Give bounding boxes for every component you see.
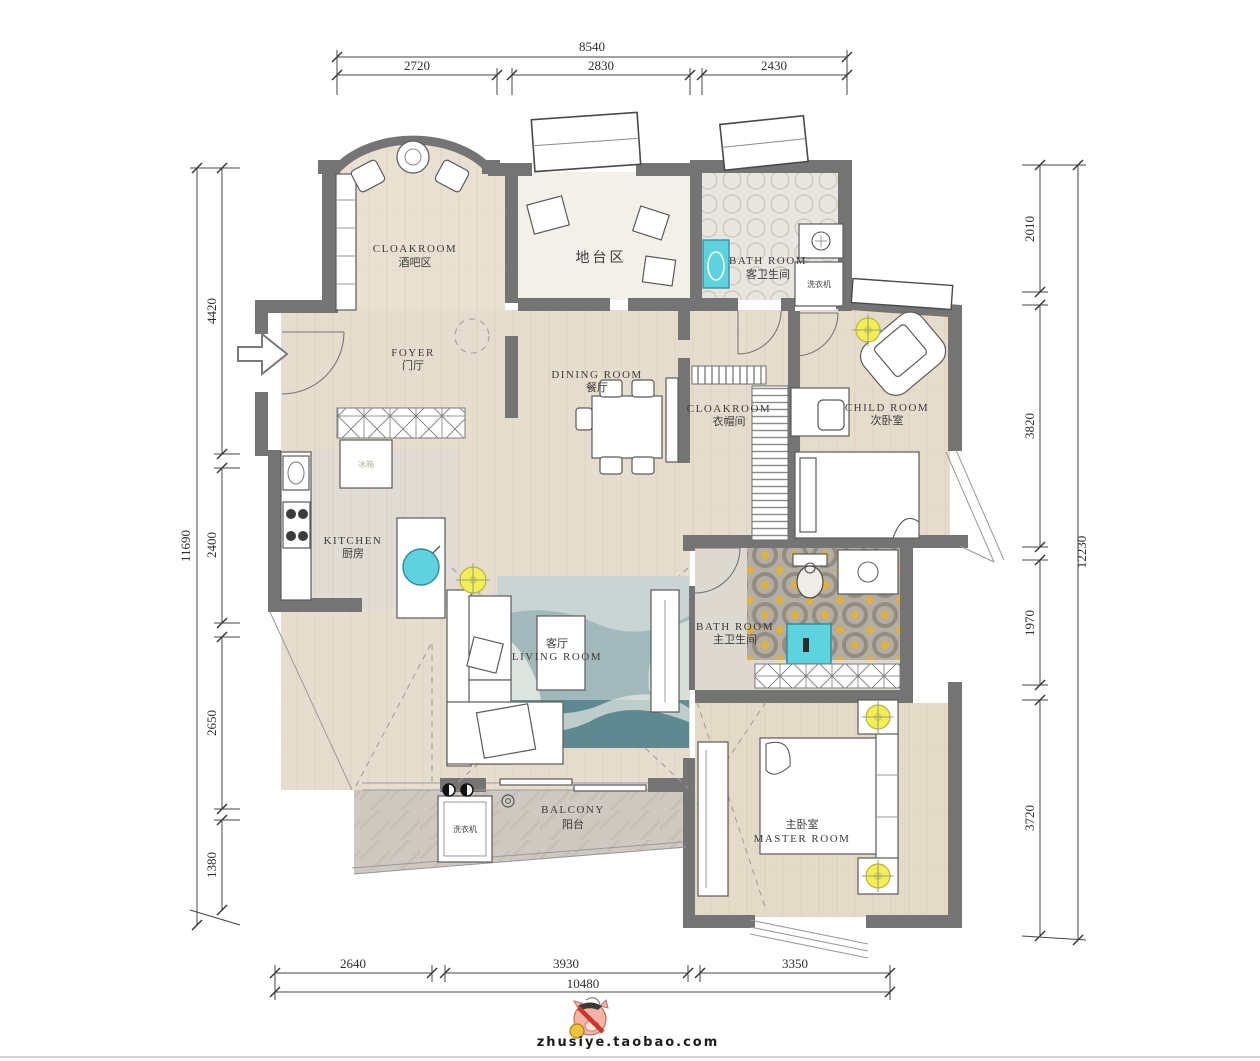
- child-chair: [818, 400, 844, 430]
- dim-bottom-seg3: 3350: [782, 956, 808, 971]
- room-label-master-bath-en: BATH ROOM: [696, 621, 774, 633]
- watermark: zhusiye.taobao.com: [0, 998, 1260, 1057]
- dim-left-seg4: 1380: [204, 852, 219, 878]
- dim-right-seg3: 1970: [1022, 610, 1037, 636]
- dim-left-seg1: 4420: [204, 298, 219, 324]
- room-label-cloakroom-zh: 衣帽间: [713, 414, 746, 428]
- room-label-guest-bath-zh: 客卫生间: [746, 267, 790, 281]
- stove: [283, 502, 310, 548]
- dim-right-seg2: 3820: [1022, 413, 1037, 439]
- pig-logo-icon: [570, 998, 608, 1038]
- dim-right-seg4: 3720: [1022, 805, 1037, 831]
- headboard: [876, 732, 898, 860]
- room-label-balcony-zh: 阳台: [562, 817, 584, 831]
- room-label-kitchen-en: KITCHEN: [324, 535, 383, 547]
- dim-left-seg2: 2400: [204, 532, 219, 558]
- room-label-child-zh: 次卧室: [871, 413, 904, 427]
- room-label-child-en: CHILD ROOM: [845, 402, 929, 414]
- mb-toilet-tank: [793, 554, 827, 566]
- label-guest-washer: 洗衣机: [807, 279, 831, 289]
- room-label-living-en: LIVING ROOM: [512, 651, 602, 663]
- room-label-balcony-en: BALCONY: [541, 804, 605, 816]
- dim-right-total: 12230: [1074, 536, 1089, 569]
- dim-top-seg2: 2830: [588, 58, 614, 73]
- floor-plan-drawing: CLOAKROOM 酒吧区 地台区 BATH ROOM 客卫生间 洗衣机 FOY…: [0, 0, 1260, 1061]
- label-balcony-washer: 洗衣机: [453, 824, 477, 834]
- watermark-url: zhusiye.taobao.com: [537, 1035, 720, 1050]
- dim-left-total: 11690: [178, 530, 193, 562]
- dim-top-seg1: 2720: [404, 58, 430, 73]
- entrance-arrow-icon: [238, 334, 287, 374]
- mb-toilet: [797, 566, 823, 598]
- dim-bottom-total: 10480: [567, 976, 600, 991]
- dim-top-seg3: 2430: [761, 58, 787, 73]
- master-tv-cabinet: [698, 742, 728, 896]
- room-label-dining-zh: 餐厅: [586, 380, 608, 394]
- room-label-dining-en: DINING ROOM: [551, 369, 642, 381]
- mb-vanity-right: [838, 550, 898, 594]
- room-label-living-zh: 客厅: [546, 636, 568, 650]
- room-label-master-zh: 主卧室: [786, 817, 819, 831]
- dim-top-total: 8540: [579, 39, 605, 54]
- floor-plan-page: CLOAKROOM 酒吧区 地台区 BATH ROOM 客卫生间 洗衣机 FOY…: [0, 0, 1260, 1061]
- island-sink: [403, 549, 439, 585]
- room-label-guest-bath-en: BATH ROOM: [729, 255, 807, 267]
- room-label-foyer-zh: 门厅: [402, 358, 424, 372]
- dim-right-seg1: 2010: [1022, 216, 1037, 242]
- room-label-bar-zh: 酒吧区: [399, 256, 432, 269]
- room-label-master-bath-zh: 主卫生间: [713, 632, 757, 646]
- room-label-foyer-en: FOYER: [391, 347, 435, 359]
- dim-left-seg3: 2650: [204, 710, 219, 736]
- dim-bottom-seg1: 2640: [340, 956, 366, 971]
- room-label-bar-en: CLOAKROOM: [373, 243, 457, 255]
- label-fridge: 冰箱: [358, 459, 374, 469]
- room-label-kitchen-zh: 厨房: [342, 547, 364, 560]
- dim-bottom-seg2: 3930: [553, 956, 579, 971]
- round-table: [397, 141, 429, 173]
- room-label-platform: 地台区: [576, 250, 627, 266]
- room-label-cloakroom-en: CLOAKROOM: [687, 403, 771, 415]
- room-label-master-en: MASTER ROOM: [754, 833, 851, 845]
- guest-toilet: [703, 240, 729, 288]
